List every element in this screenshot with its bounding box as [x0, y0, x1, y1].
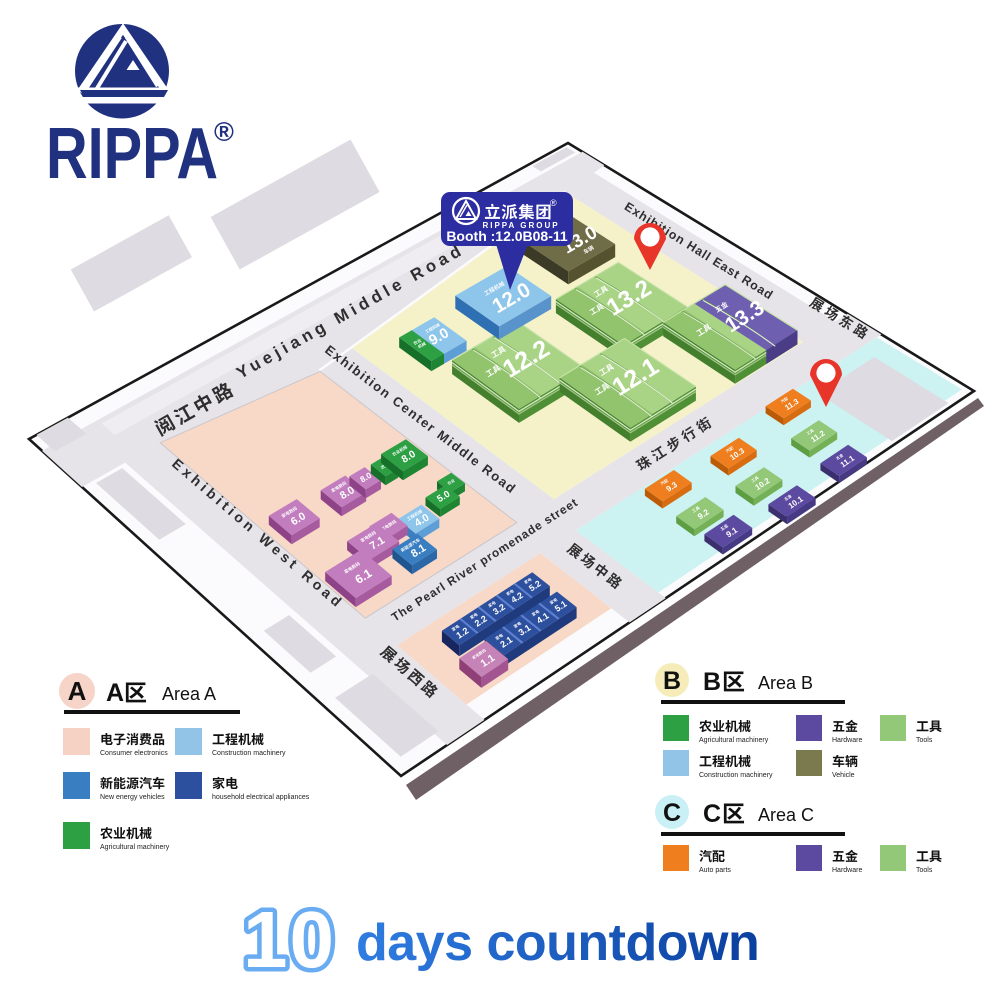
- svg-text:B: B: [663, 667, 681, 695]
- svg-text:10: 10: [243, 895, 336, 984]
- svg-text:Vehicle: Vehicle: [832, 772, 855, 779]
- svg-text:Agricultural machinery: Agricultural machinery: [100, 844, 170, 851]
- svg-text:A: A: [68, 676, 87, 706]
- svg-text:B: B: [703, 668, 721, 696]
- svg-text:A: A: [106, 679, 124, 707]
- svg-text:C: C: [703, 800, 721, 828]
- svg-text:Consumer electronics: Consumer electronics: [100, 750, 168, 757]
- svg-text:Area A: Area A: [162, 684, 216, 704]
- svg-text:Hardware: Hardware: [832, 737, 862, 744]
- svg-text:Tools: Tools: [916, 867, 933, 874]
- svg-text:Auto parts: Auto parts: [699, 867, 731, 874]
- svg-text:Agricultural machinery: Agricultural machinery: [699, 737, 769, 744]
- svg-text:®: ®: [214, 117, 234, 147]
- svg-text:Construction machinery: Construction machinery: [212, 750, 286, 757]
- svg-text:C: C: [663, 799, 681, 827]
- svg-text:days countdown: days countdown: [356, 914, 759, 972]
- svg-text:Hardware: Hardware: [832, 867, 862, 874]
- svg-text:household electrical appliance: household electrical appliances: [212, 794, 310, 801]
- svg-text:®: ®: [550, 198, 557, 208]
- svg-text:Area C: Area C: [758, 805, 814, 825]
- svg-text:Construction machinery: Construction machinery: [699, 772, 773, 779]
- svg-text:Tools: Tools: [916, 737, 933, 744]
- svg-text:Booth :12.0B08-11: Booth :12.0B08-11: [446, 228, 568, 244]
- svg-text:New energy vehicles: New energy vehicles: [100, 794, 165, 801]
- svg-text:Area B: Area B: [758, 673, 813, 693]
- svg-text:RIPPA: RIPPA: [46, 114, 218, 194]
